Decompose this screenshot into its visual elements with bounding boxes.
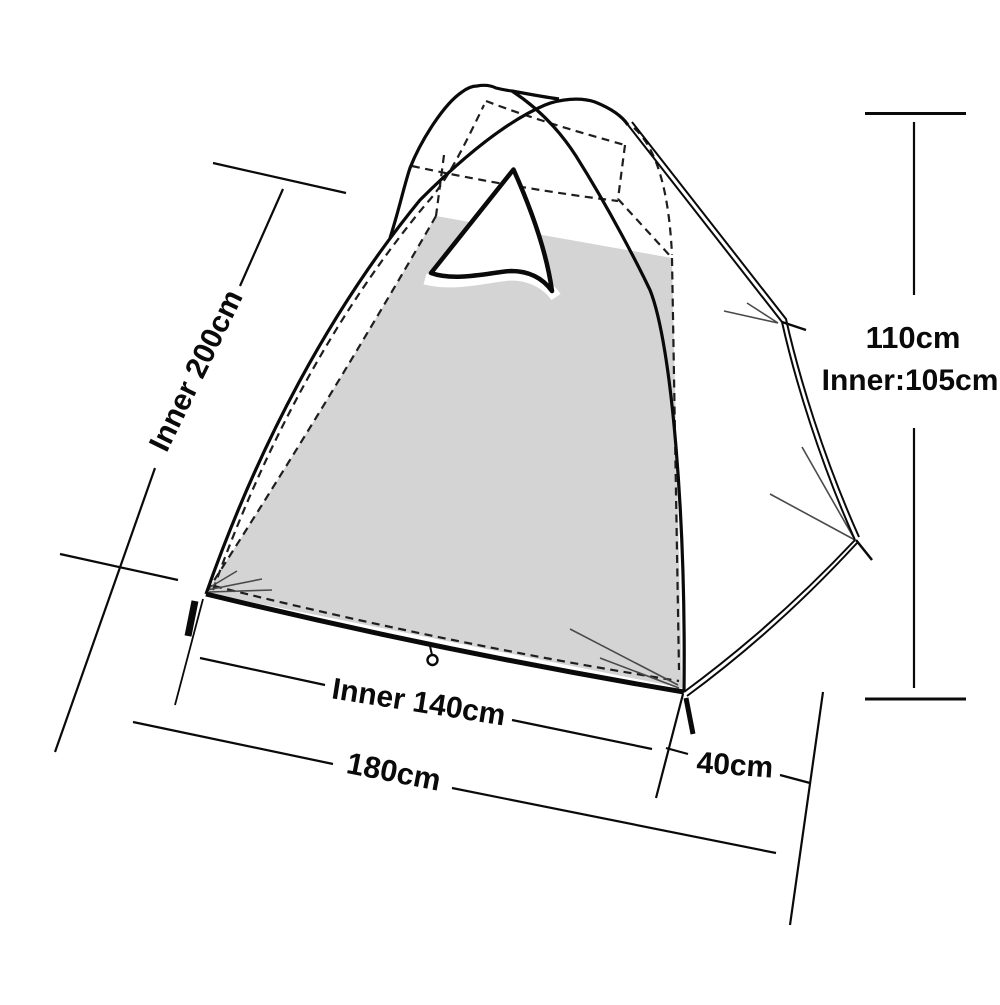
svg-text:Inner:105cm: Inner:105cm (822, 364, 999, 397)
svg-text:110cm: 110cm (866, 320, 961, 355)
svg-text:40cm: 40cm (695, 746, 774, 784)
